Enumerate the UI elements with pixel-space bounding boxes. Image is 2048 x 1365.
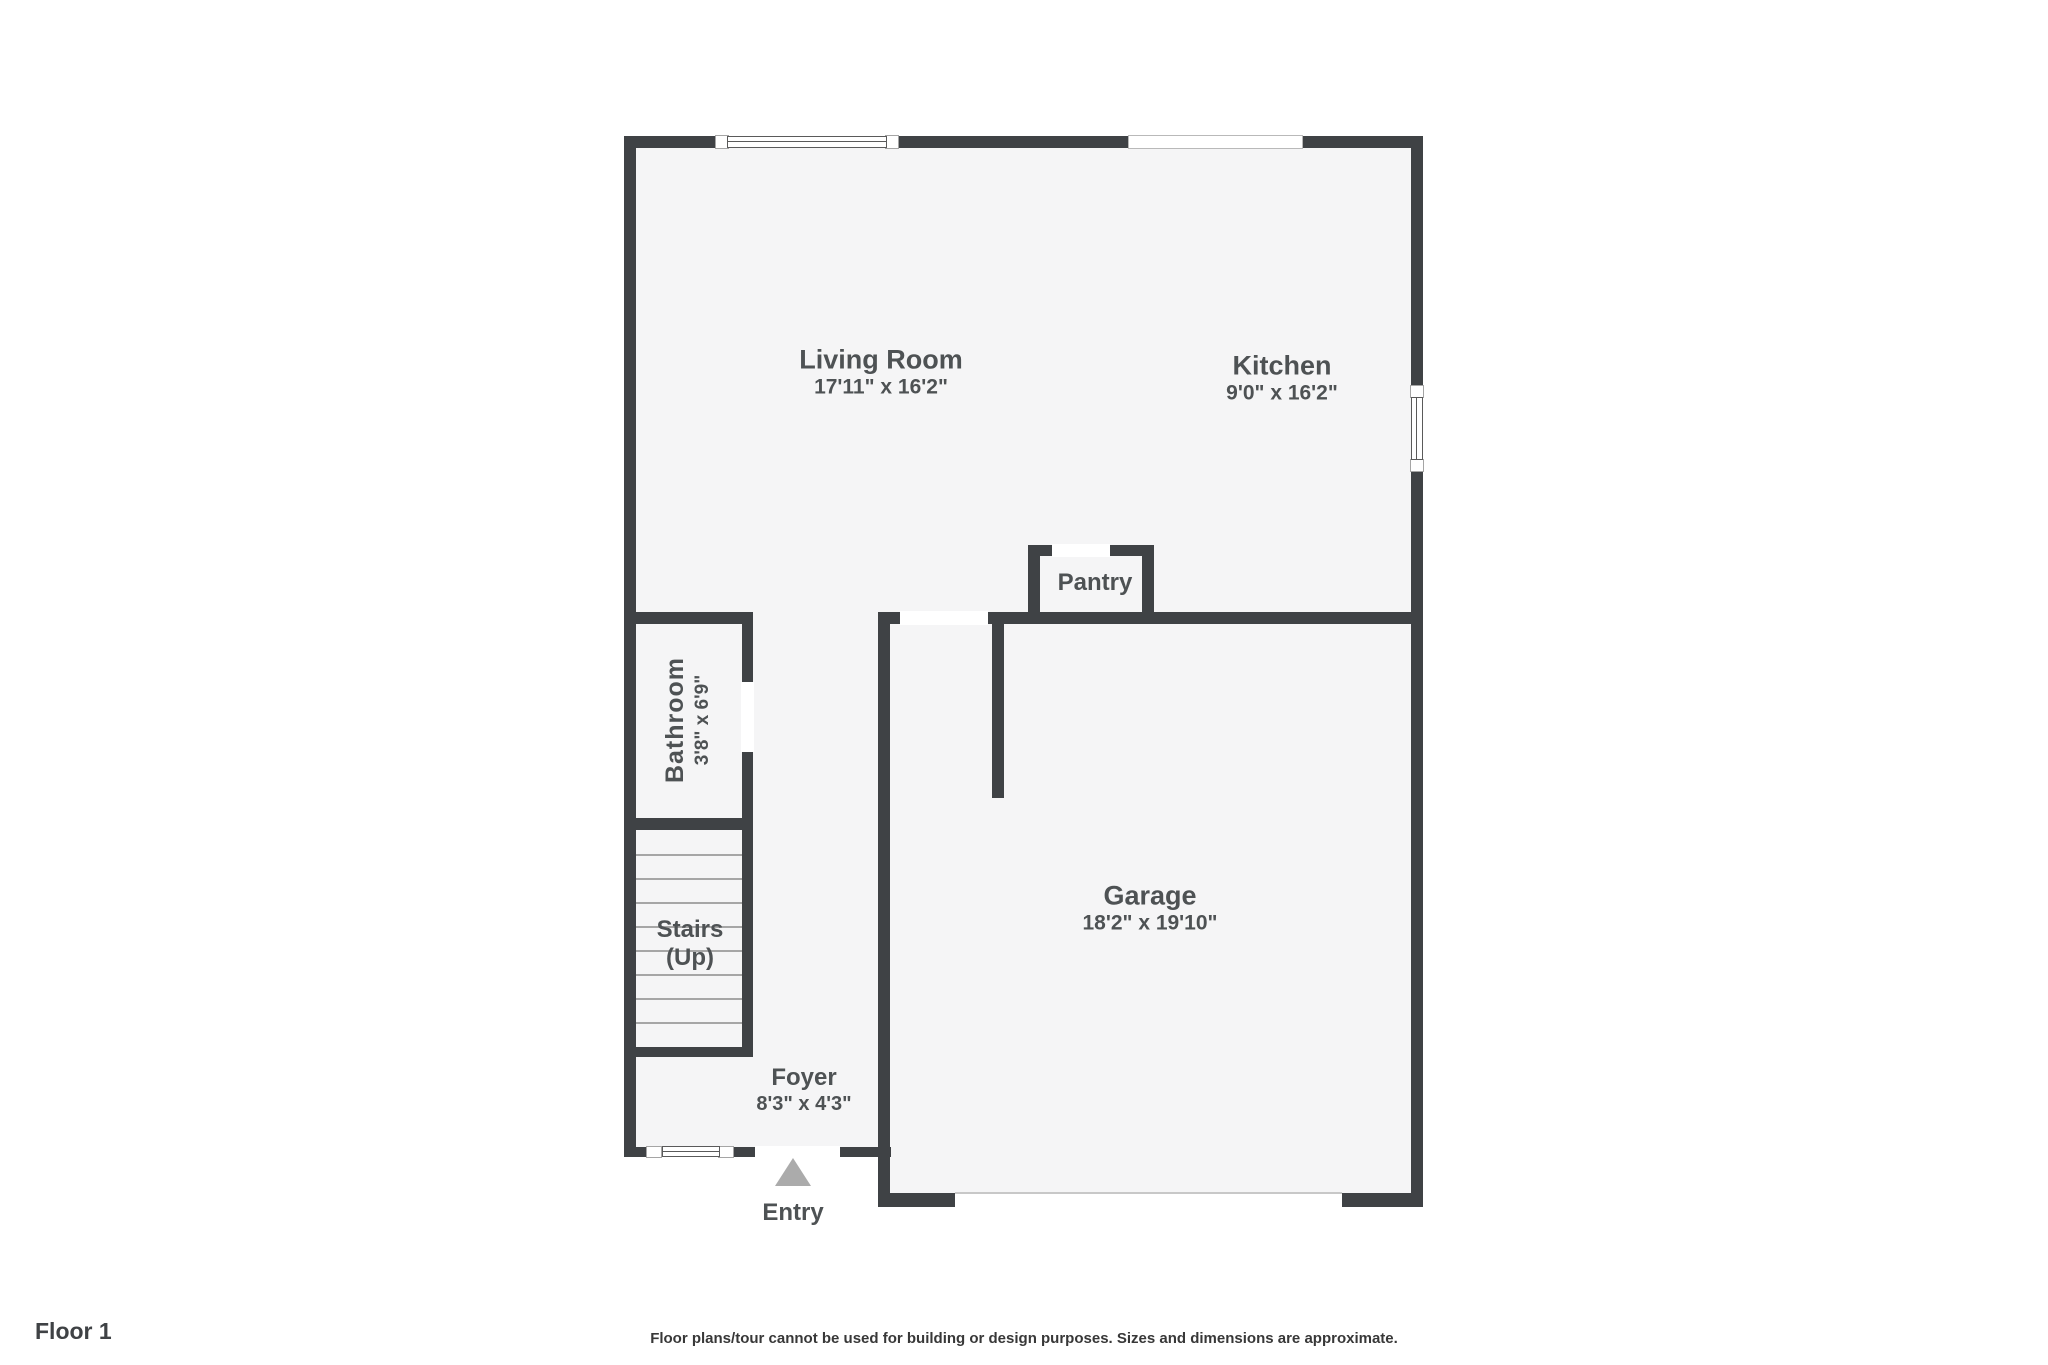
kitchen-side-window: [1411, 397, 1423, 460]
stair-tread: [636, 902, 742, 904]
garage-label: Garage 18'2" x 19'10": [1082, 881, 1217, 936]
kitchen-label: Kitchen 9'0" x 16'2": [1226, 351, 1338, 406]
floor-plan: Living Room 17'11" x 16'2" Kitchen 9'0" …: [0, 0, 2048, 1365]
stair-tread: [636, 998, 742, 1000]
foyer-name: Foyer: [756, 1064, 851, 1092]
wall-exterior-right: [1411, 136, 1423, 1207]
living-room-window-cap: [885, 135, 899, 149]
pantry-name: Pantry: [1058, 569, 1133, 597]
foyer-window-cap: [646, 1146, 662, 1158]
garage-name: Garage: [1082, 881, 1217, 911]
stair-tread: [636, 878, 742, 880]
garage-interior-door-opening: [900, 611, 988, 625]
wall-pantry-right: [1142, 545, 1154, 624]
garage-door-opening: [955, 1192, 1342, 1208]
stair-tread: [636, 974, 742, 976]
living-room-dims: 17'11" x 16'2": [799, 375, 963, 400]
entry-label: Entry: [762, 1199, 823, 1227]
entry-name: Entry: [762, 1199, 823, 1227]
wall-stairs-right: [742, 830, 753, 1057]
foyer-window-cap: [718, 1146, 734, 1158]
wall-garage-stub: [992, 624, 1004, 798]
foyer-label: Foyer 8'3" x 4'3": [756, 1064, 851, 1116]
living-room-name: Living Room: [799, 345, 963, 375]
wall-exterior-left: [624, 136, 636, 1157]
foyer-window: [662, 1146, 720, 1157]
pantry-label: Pantry: [1058, 569, 1133, 597]
wall-bathroom-bottom: [624, 818, 753, 830]
wall-bathroom-top: [624, 612, 753, 624]
kitchen-side-window-cap: [1410, 459, 1424, 472]
kitchen-name: Kitchen: [1226, 351, 1338, 381]
garage-dims: 18'2" x 19'10": [1082, 911, 1217, 936]
hall-area: [753, 612, 878, 1057]
entry-direction-arrow-icon: [775, 1158, 811, 1186]
foyer-dims: 8'3" x 4'3": [756, 1092, 851, 1116]
wall-stairs-bottom: [624, 1047, 753, 1057]
wall-pantry-left: [1028, 545, 1040, 624]
stair-tread: [636, 854, 742, 856]
disclaimer-text: Floor plans/tour cannot be used for buil…: [0, 1330, 2048, 1347]
kitchen-dims: 9'0" x 16'2": [1226, 381, 1338, 406]
stairs-direction: (Up): [657, 944, 724, 972]
kitchen-top-window: [1128, 135, 1303, 149]
bathroom-door-opening: [741, 682, 754, 752]
bathroom-name: Bathroom: [660, 657, 690, 783]
bathroom-label: Bathroom 3'8" x 6'9": [660, 657, 716, 783]
entry-door-opening: [755, 1146, 840, 1158]
living-room-window: [727, 136, 887, 148]
pantry-door-opening: [1052, 544, 1110, 557]
bathroom-dims: 3'8" x 6'9": [690, 657, 716, 783]
stairs-name: Stairs: [657, 916, 724, 944]
stairs-label: Stairs (Up): [657, 916, 724, 972]
living-room-label: Living Room 17'11" x 16'2": [799, 345, 963, 400]
wall-garage-left: [878, 612, 890, 1207]
stair-tread: [636, 1022, 742, 1024]
